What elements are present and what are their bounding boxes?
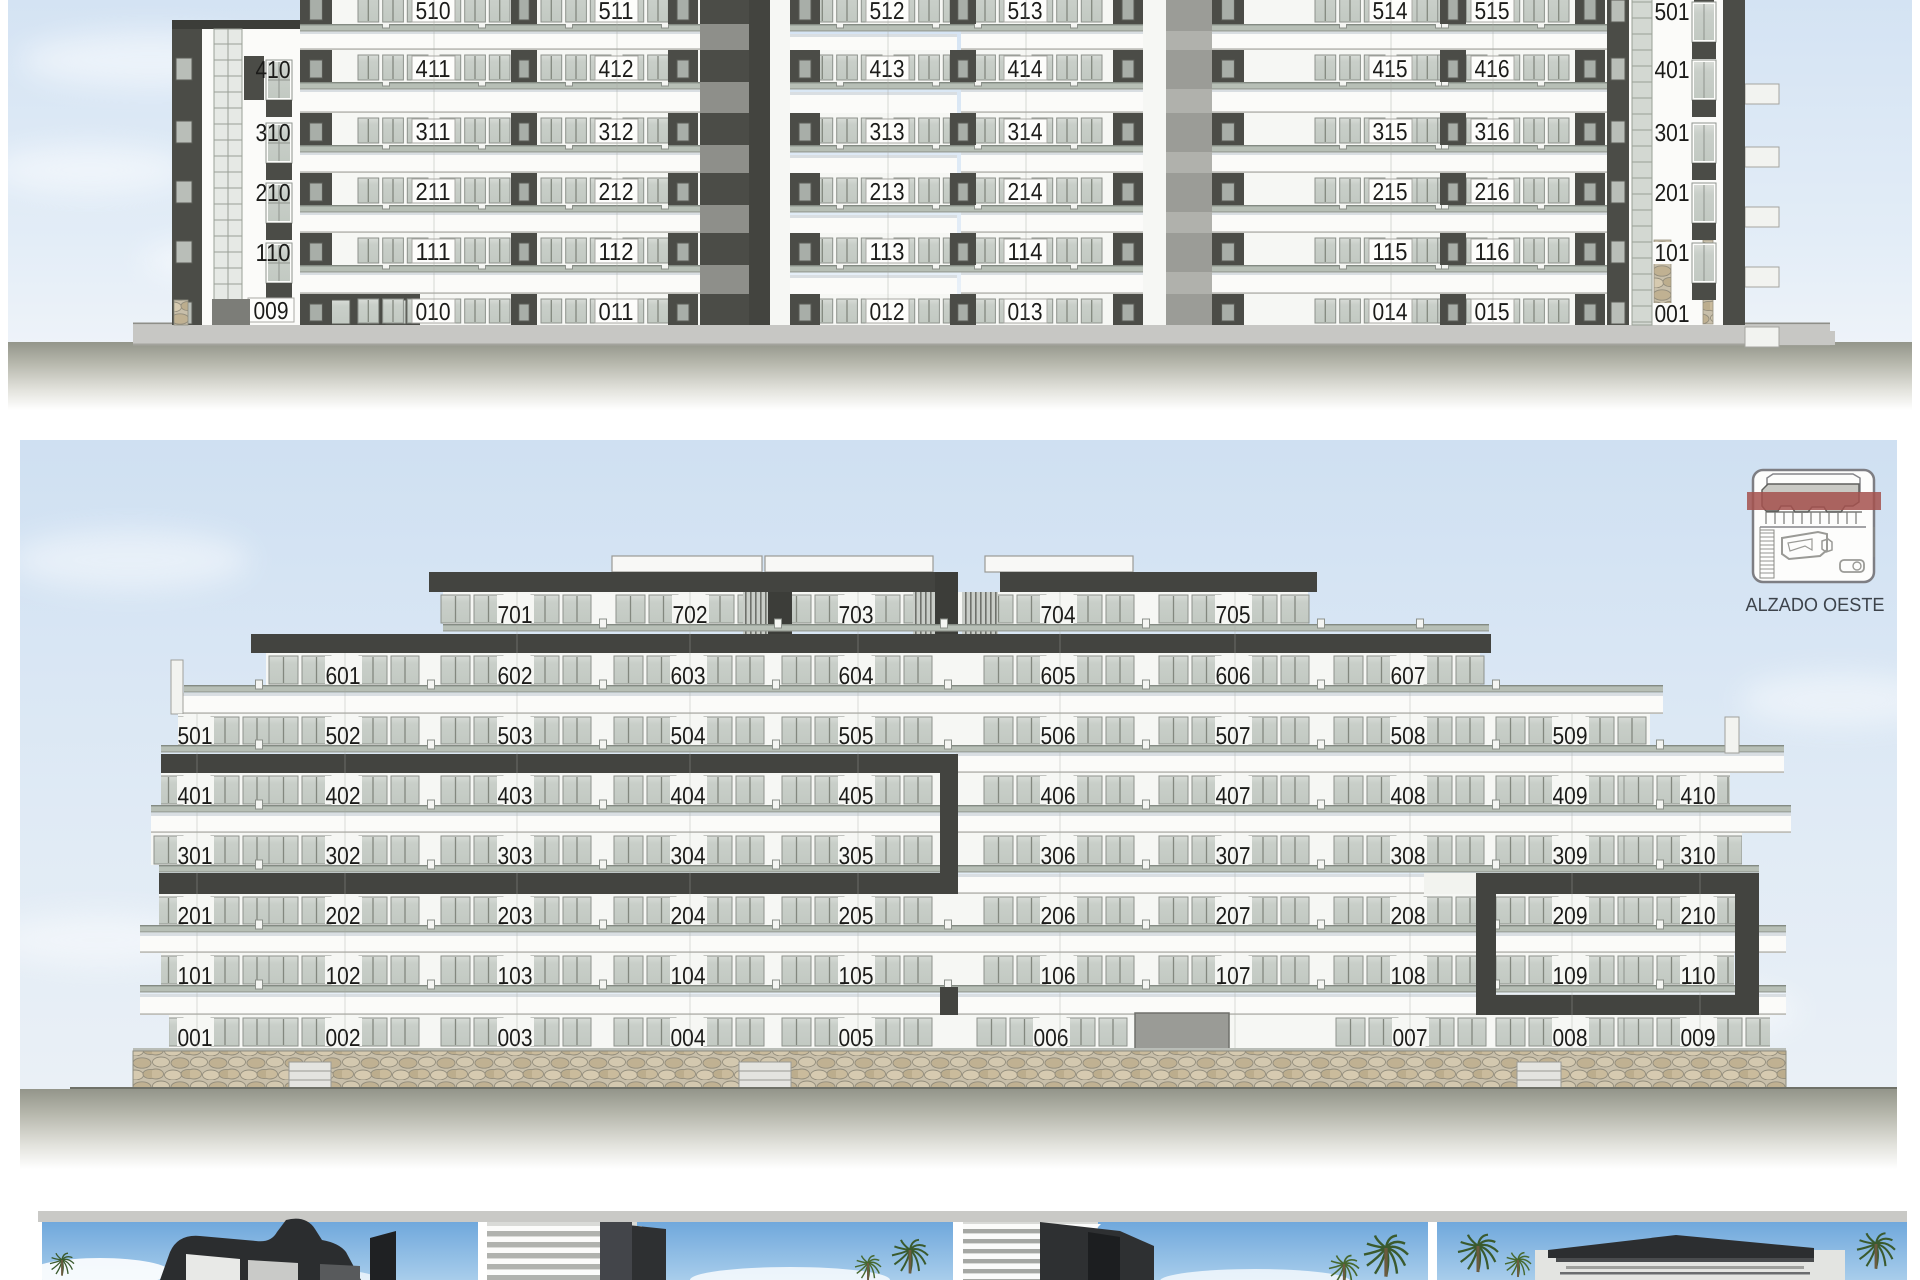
svg-text:510: 510 (416, 0, 451, 25)
svg-text:414: 414 (1008, 56, 1043, 83)
svg-text:513: 513 (1008, 0, 1043, 25)
svg-text:ALZADO OESTE: ALZADO OESTE (1746, 595, 1885, 616)
svg-text:415: 415 (1373, 56, 1408, 83)
svg-text:310: 310 (256, 120, 291, 147)
svg-text:214: 214 (1008, 179, 1043, 206)
svg-text:413: 413 (870, 56, 905, 83)
svg-text:512: 512 (870, 0, 905, 25)
svg-text:212: 212 (599, 179, 634, 206)
svg-text:111: 111 (416, 239, 451, 266)
svg-text:101: 101 (1655, 240, 1690, 267)
svg-text:514: 514 (1373, 0, 1408, 25)
svg-text:005: 005 (839, 1025, 874, 1052)
svg-text:009: 009 (254, 298, 289, 325)
svg-text:001: 001 (178, 1025, 213, 1052)
svg-text:216: 216 (1475, 179, 1510, 206)
svg-text:004: 004 (671, 1025, 706, 1052)
svg-text:301: 301 (1655, 120, 1690, 147)
svg-text:012: 012 (870, 299, 905, 326)
svg-text:015: 015 (1475, 299, 1510, 326)
svg-text:215: 215 (1373, 179, 1408, 206)
svg-text:001: 001 (1655, 301, 1690, 328)
svg-text:515: 515 (1475, 0, 1510, 25)
svg-text:008: 008 (1553, 1025, 1588, 1052)
svg-text:416: 416 (1475, 56, 1510, 83)
svg-text:009: 009 (1681, 1025, 1716, 1052)
svg-text:110: 110 (256, 240, 291, 267)
svg-text:401: 401 (1655, 57, 1690, 84)
svg-text:316: 316 (1475, 119, 1510, 146)
svg-text:210: 210 (256, 180, 291, 207)
svg-text:010: 010 (416, 299, 451, 326)
svg-text:412: 412 (599, 56, 634, 83)
svg-text:313: 313 (870, 119, 905, 146)
svg-text:013: 013 (1008, 299, 1043, 326)
svg-text:311: 311 (416, 119, 451, 146)
svg-text:003: 003 (498, 1025, 533, 1052)
svg-text:002: 002 (326, 1025, 361, 1052)
svg-text:314: 314 (1008, 119, 1043, 146)
svg-text:411: 411 (416, 56, 451, 83)
svg-text:116: 116 (1475, 239, 1510, 266)
svg-text:113: 113 (870, 239, 905, 266)
svg-text:501: 501 (1655, 0, 1690, 26)
svg-text:114: 114 (1008, 239, 1043, 266)
svg-text:312: 312 (599, 119, 634, 146)
svg-text:201: 201 (1655, 180, 1690, 207)
svg-text:213: 213 (870, 179, 905, 206)
svg-text:014: 014 (1373, 299, 1408, 326)
svg-text:112: 112 (599, 239, 634, 266)
svg-text:011: 011 (599, 299, 634, 326)
svg-text:006: 006 (1034, 1025, 1069, 1052)
svg-text:410: 410 (256, 57, 291, 84)
svg-text:511: 511 (599, 0, 634, 25)
svg-text:115: 115 (1373, 239, 1408, 266)
svg-text:211: 211 (416, 179, 451, 206)
svg-text:315: 315 (1373, 119, 1408, 146)
